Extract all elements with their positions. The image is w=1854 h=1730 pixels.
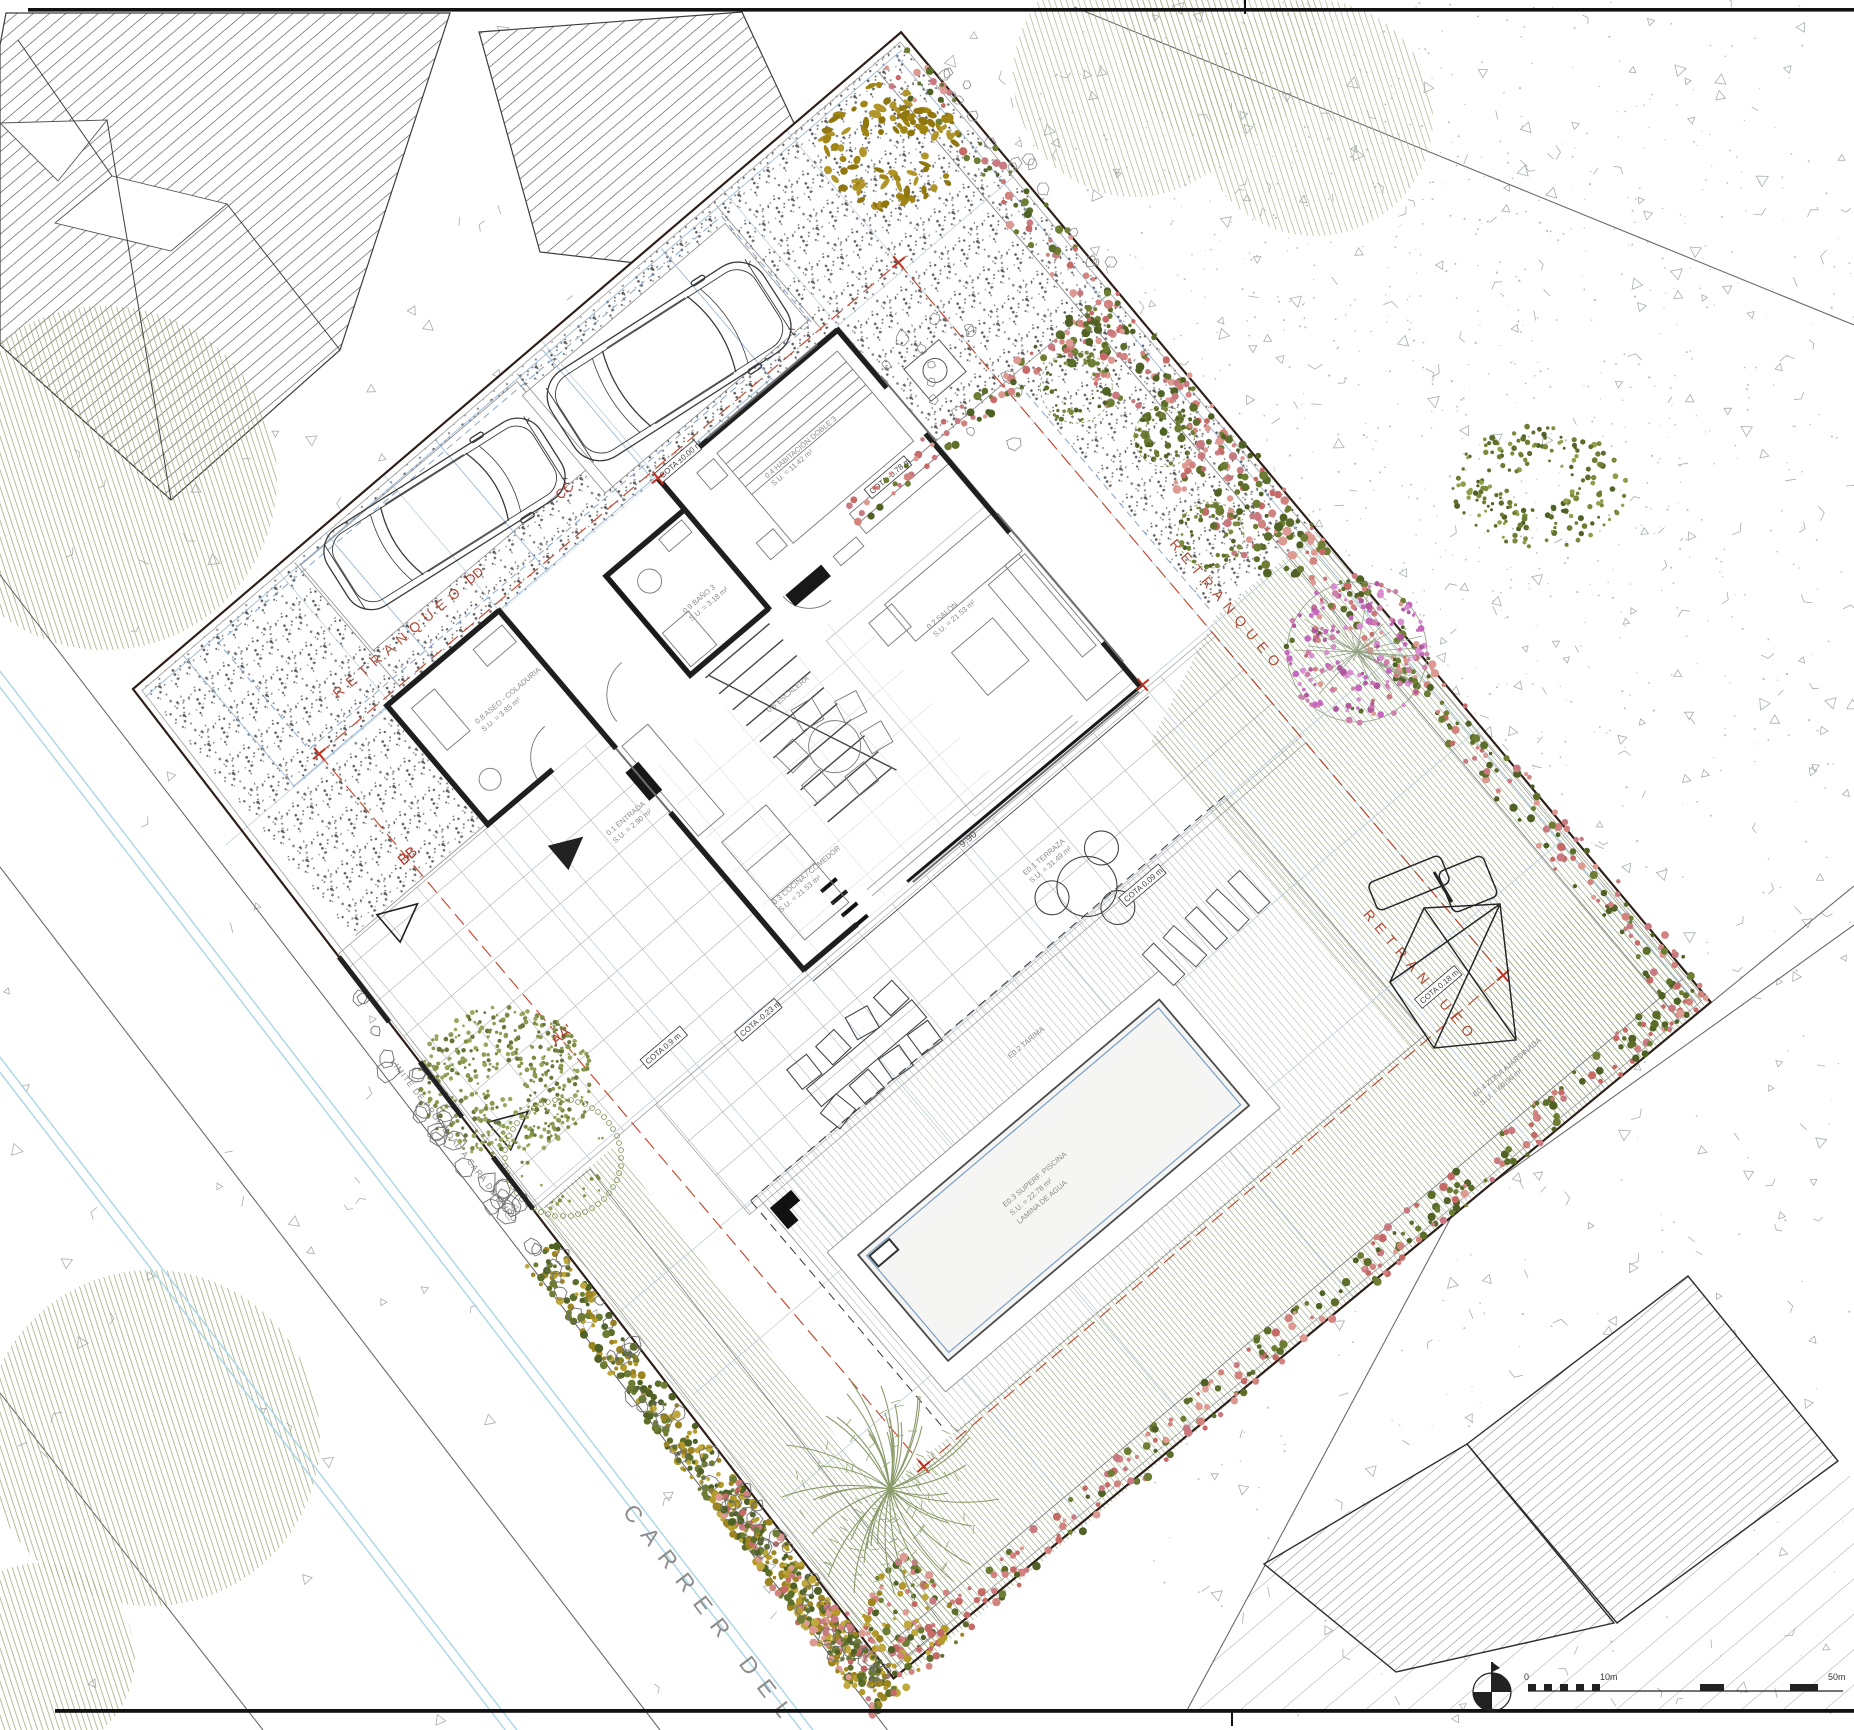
svg-text:50m: 50m <box>1828 1672 1846 1682</box>
svg-text:0: 0 <box>1524 1672 1529 1682</box>
svg-text:10m: 10m <box>1600 1672 1618 1682</box>
